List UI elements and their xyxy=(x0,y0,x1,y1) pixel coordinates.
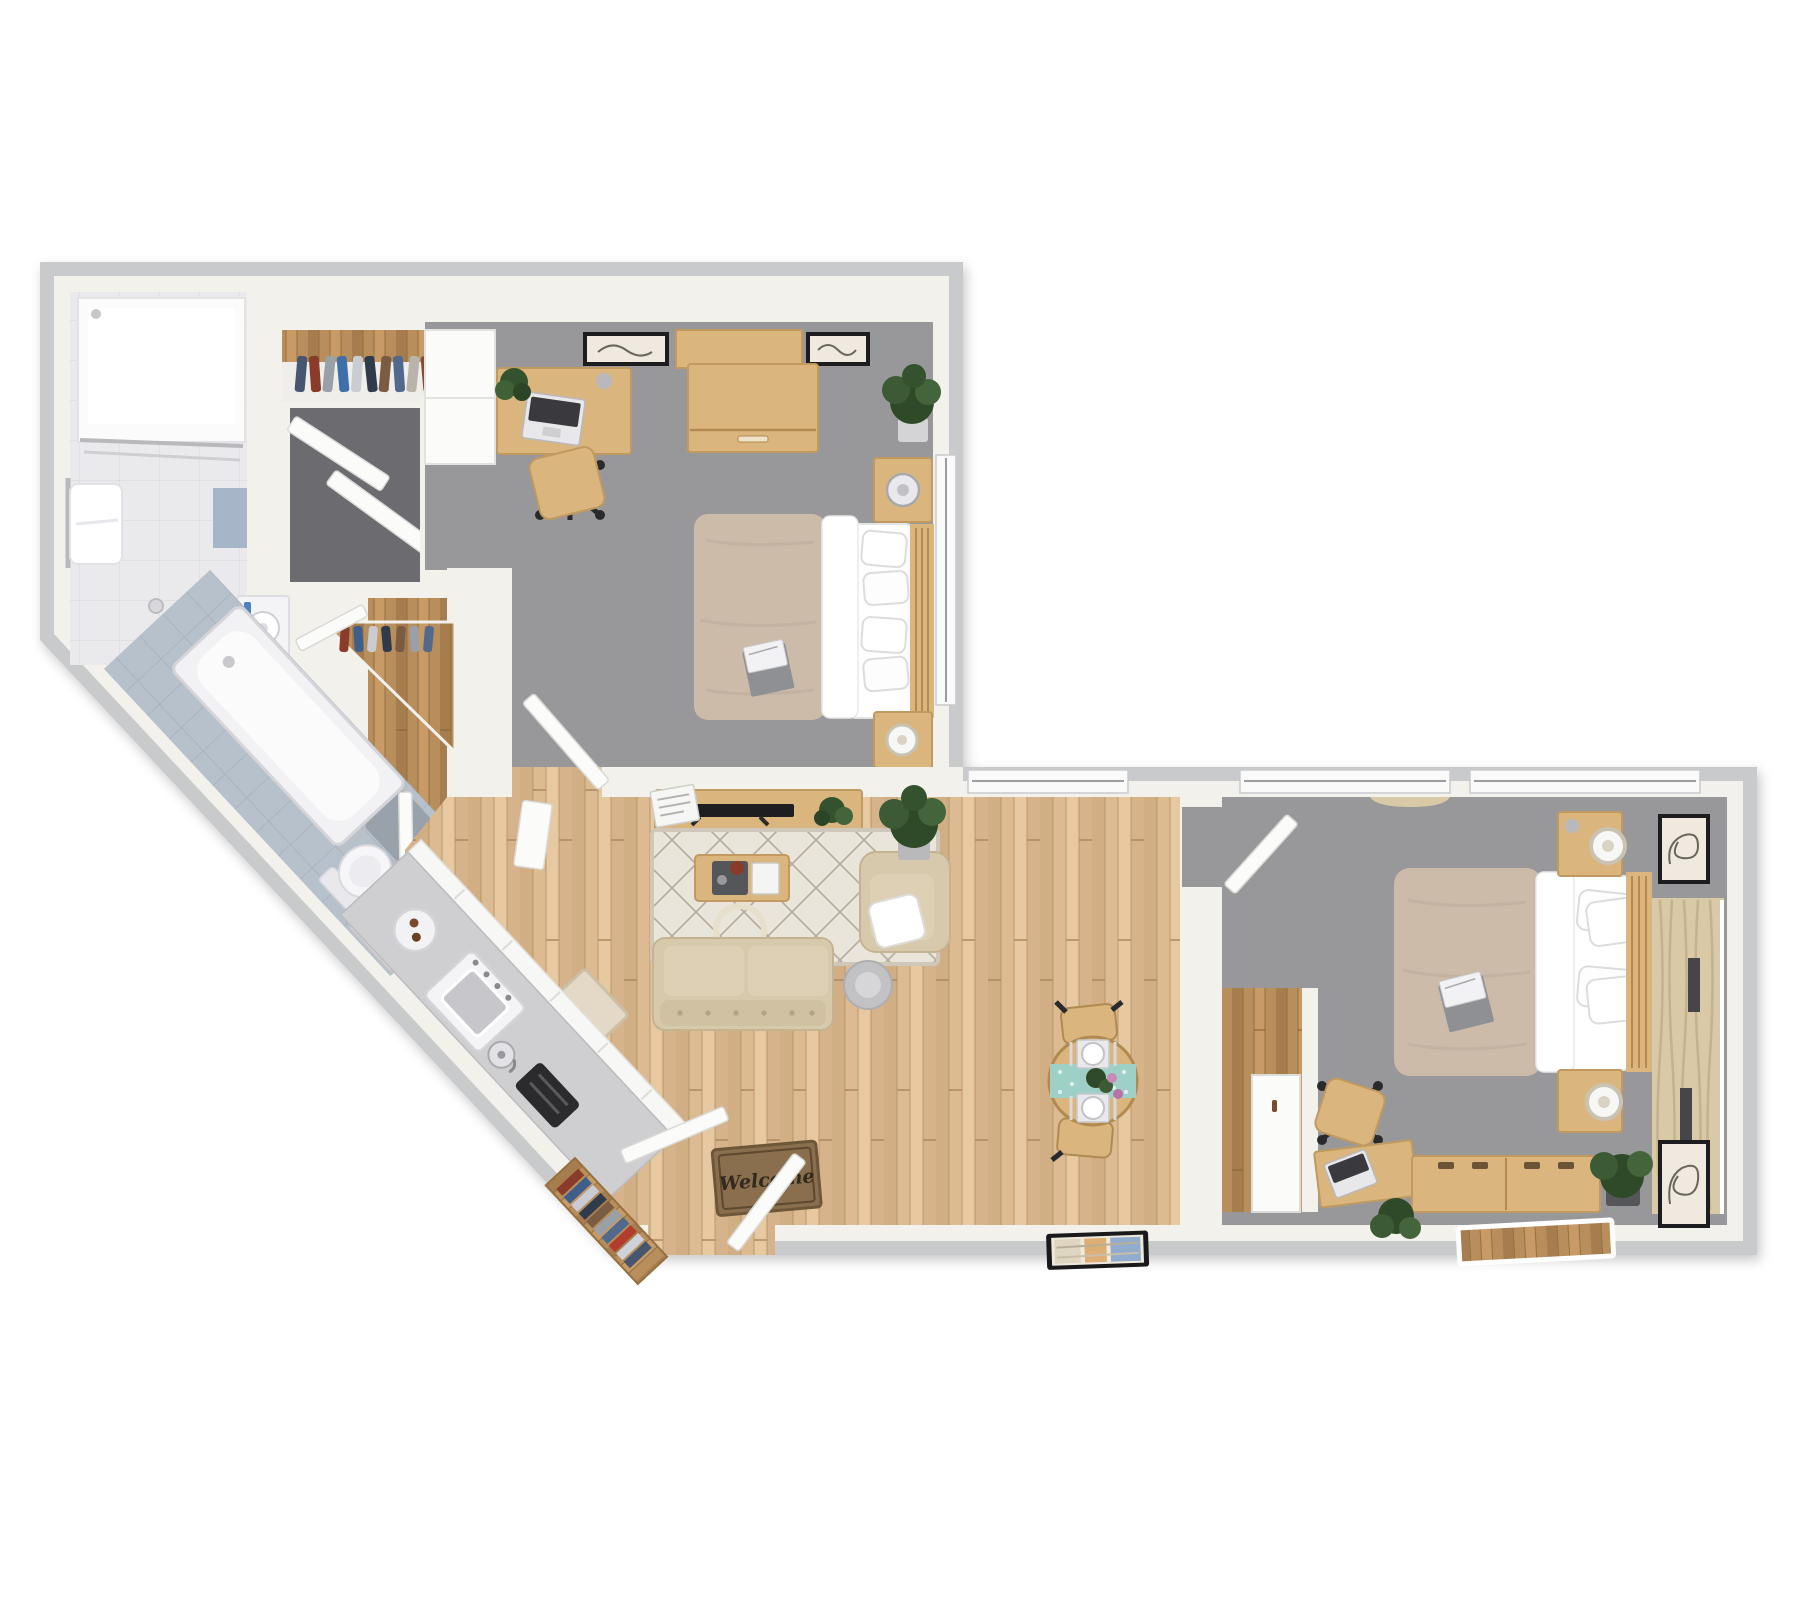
side-table xyxy=(844,961,892,1009)
laptop-icon xyxy=(522,392,586,446)
closet-sliding-door xyxy=(1252,1075,1300,1212)
desk-decor-icon xyxy=(596,373,612,389)
dresser-2 xyxy=(1412,1156,1600,1212)
nightstand-1b xyxy=(874,712,932,768)
bowl-icon xyxy=(730,861,744,875)
office-chair-2 xyxy=(1313,1076,1387,1148)
nightstand-2b xyxy=(1558,1070,1622,1132)
headboard xyxy=(910,524,934,718)
leaning-wood-panel xyxy=(676,330,802,368)
floor-plan-render: Welcome xyxy=(0,0,1800,1600)
nightstand-2a xyxy=(1558,812,1625,876)
duvet-fold-2 xyxy=(1536,872,1574,1072)
wall-art-2 xyxy=(808,334,868,364)
media-console xyxy=(650,784,862,830)
bed-2 xyxy=(1394,868,1652,1076)
armchair xyxy=(860,852,950,952)
bedroom-2-door-gap xyxy=(1182,807,1222,887)
white-cabinet xyxy=(425,330,495,464)
wall-art-4 xyxy=(1660,1142,1708,1226)
utility-closet xyxy=(287,408,443,582)
bed-1 xyxy=(694,514,934,720)
place-setting-bottom xyxy=(1071,1094,1115,1122)
wall-art-3 xyxy=(1660,816,1708,882)
toilet-paper-holder-icon xyxy=(149,599,163,613)
leaning-mirror xyxy=(1458,1220,1614,1264)
wall-art-1 xyxy=(585,334,667,364)
window-slit-2 xyxy=(1680,1088,1692,1146)
desk xyxy=(495,368,631,454)
book-icon xyxy=(752,863,779,894)
dresser-1 xyxy=(688,364,818,452)
blue-accent-tile xyxy=(213,488,247,548)
bedroom-2-closet xyxy=(1222,988,1318,1212)
nightstand-1a xyxy=(874,458,932,522)
towel-bar xyxy=(68,478,122,568)
sofa xyxy=(653,938,833,1030)
desk-2 xyxy=(1314,1140,1418,1208)
sofa-back xyxy=(660,1000,826,1026)
room-bedroom-2 xyxy=(1180,770,1727,1264)
clock-icon xyxy=(1565,819,1579,833)
walk-in-shower xyxy=(78,298,245,460)
shower-head-icon xyxy=(91,309,101,319)
headboard-2 xyxy=(1626,872,1652,1072)
window-slit-1 xyxy=(1688,958,1700,1012)
floor-plan-svg: Welcome xyxy=(0,0,1800,1600)
magazines-icon xyxy=(650,784,700,827)
floorplan-tablet xyxy=(1046,1230,1149,1270)
coffee-table xyxy=(695,855,789,901)
place-setting-top xyxy=(1071,1040,1115,1068)
duvet-fold xyxy=(822,516,858,718)
